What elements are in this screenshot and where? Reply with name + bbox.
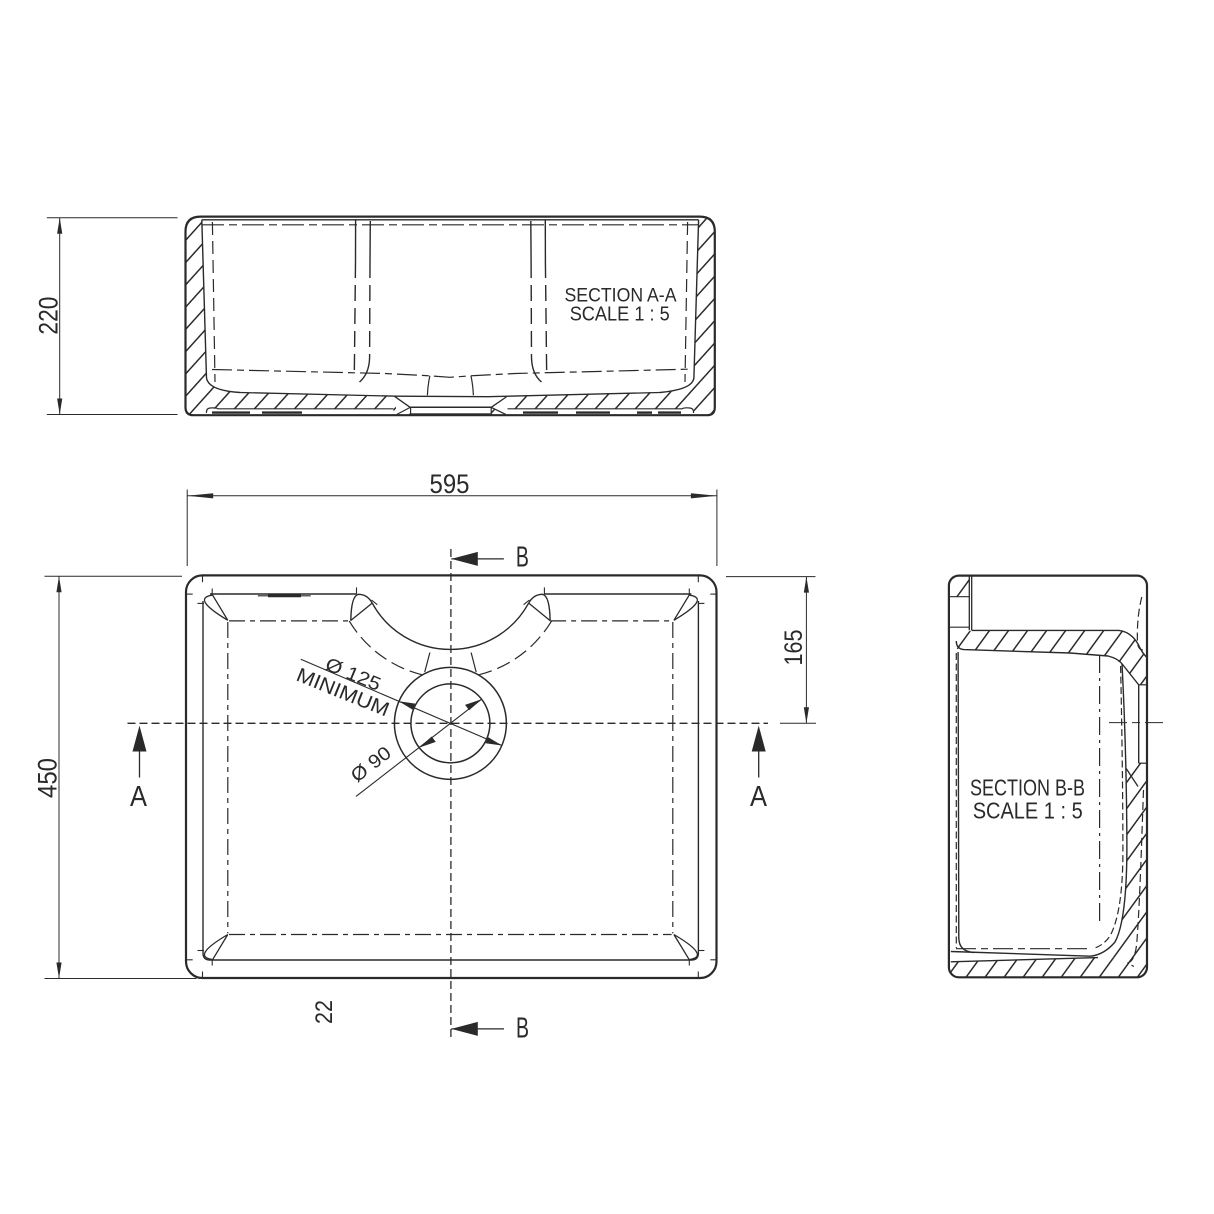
svg-text:595: 595 — [430, 469, 470, 499]
svg-text:450: 450 — [33, 758, 63, 798]
svg-text:220: 220 — [34, 297, 64, 335]
svg-text:B: B — [516, 542, 529, 574]
svg-text:A: A — [130, 781, 148, 813]
svg-text:SCALE 1 : 5: SCALE 1 : 5 — [973, 798, 1083, 824]
svg-text:22: 22 — [311, 1000, 338, 1024]
svg-text:SCALE 1 : 5: SCALE 1 : 5 — [570, 304, 670, 326]
svg-text:A: A — [750, 781, 768, 813]
svg-text:165: 165 — [780, 630, 808, 666]
svg-text:B: B — [516, 1012, 529, 1044]
